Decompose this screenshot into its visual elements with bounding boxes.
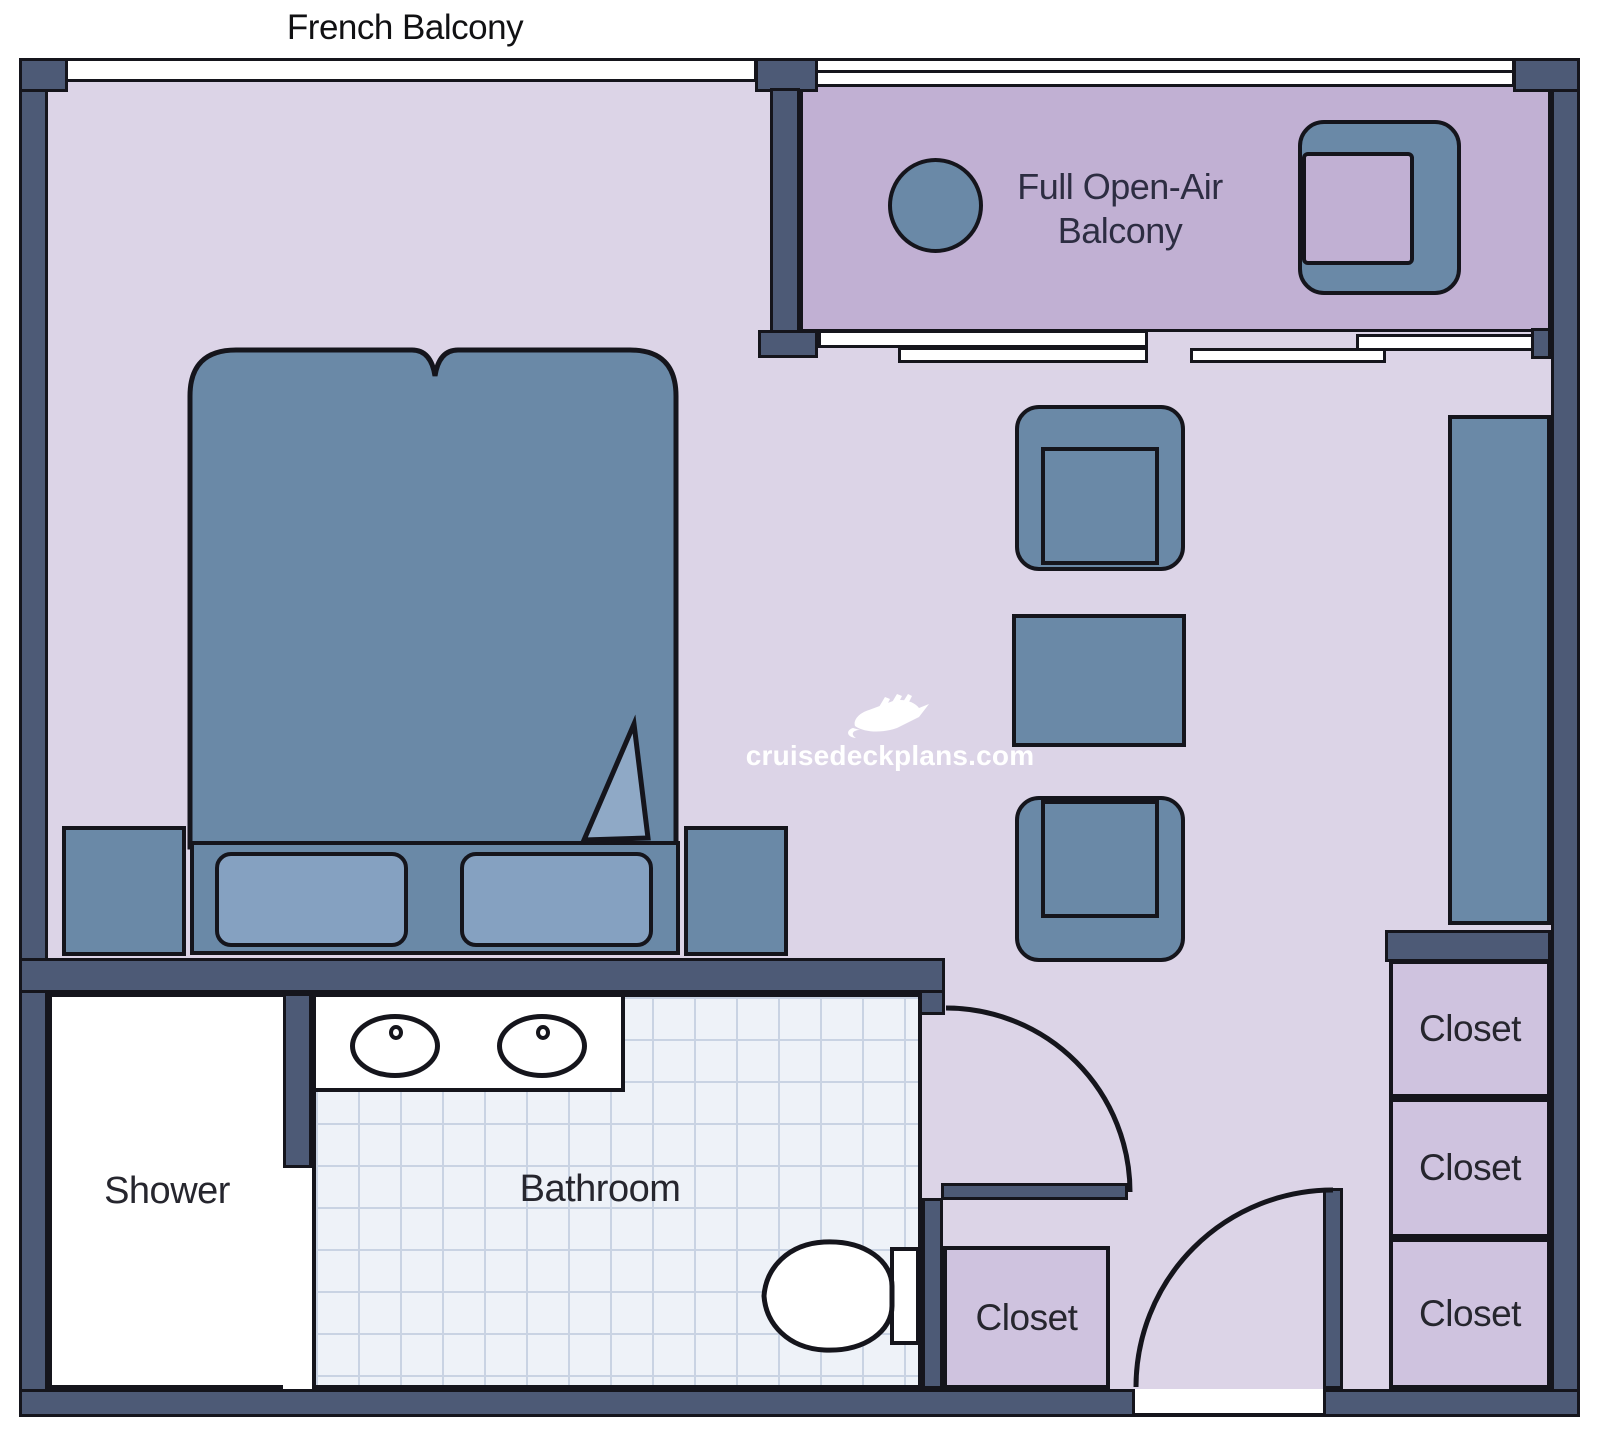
entry-threshold-line [1135, 1413, 1323, 1417]
wall-pillar-stem [770, 88, 800, 336]
closet-right-middle: Closet [1389, 1098, 1551, 1238]
sink-faucet-icon [389, 1025, 403, 1040]
closet-middle-label: Closet [976, 1297, 1078, 1339]
wall-closet-west [922, 1198, 943, 1389]
sink-faucet-icon [536, 1025, 550, 1040]
duvet-fold-corner [578, 718, 658, 848]
page-title: French Balcony [180, 8, 630, 48]
closet-middle: Closet [943, 1246, 1110, 1389]
nightstand-left [62, 826, 186, 956]
balcony-label: Full Open-Air Balcony [985, 165, 1255, 253]
cabin-floorplan: Closet Closet Closet Closet French Balco… [0, 0, 1600, 1440]
closet-right-bottom: Closet [1389, 1238, 1551, 1389]
watermark-text: cruisedeckplans.com [746, 740, 1035, 772]
balcony-chair-seat [1302, 152, 1414, 265]
watermark: cruisedeckplans.com [790, 692, 990, 772]
wall-bottom-right-segment [1323, 1389, 1580, 1417]
armchair-bottom-seat [1041, 800, 1159, 918]
closet-right-middle-label: Closet [1419, 1147, 1521, 1189]
nightstand-right [684, 826, 788, 956]
sliding-door-pane [898, 347, 1148, 363]
entry-door-swing-arc [1130, 1183, 1340, 1395]
closet-right-top: Closet [1389, 960, 1551, 1098]
french-balcony-window [48, 58, 757, 82]
wall-corner-top-left [19, 58, 68, 92]
wall-closet-column-top [1385, 930, 1551, 962]
closet-right-bottom-label: Closet [1419, 1293, 1521, 1335]
balcony-label-line2: Balcony [985, 209, 1255, 253]
cruise-ship-icon [845, 692, 935, 740]
wall-left [19, 58, 48, 1417]
armchair-top-seat [1041, 447, 1159, 565]
sliding-door-pane [1356, 334, 1534, 351]
wall-shower-divider [283, 993, 312, 1168]
bed-pillow-right [460, 852, 653, 947]
bed-pillow-left [215, 852, 408, 947]
shower-label: Shower [60, 1170, 274, 1213]
toilet-bowl [758, 1234, 898, 1358]
coffee-table [1012, 614, 1186, 747]
balcony-table [888, 158, 983, 253]
bathroom-door-swing-arc [940, 1003, 1136, 1199]
sink-basin [497, 1014, 587, 1078]
wall-corner-top-right [1513, 58, 1580, 92]
wall-pillar-top-flange [755, 58, 818, 92]
sliding-door-pane [818, 330, 1148, 348]
sink-basin [350, 1014, 440, 1078]
closet-right-top-label: Closet [1419, 1008, 1521, 1050]
wall-pillar-bottom-flange [758, 330, 818, 358]
wall-balcony-corner-notch [1531, 328, 1551, 359]
bathroom-label: Bathroom [450, 1168, 750, 1211]
balcony-label-line1: Full Open-Air [985, 165, 1255, 209]
wall-bathroom-north [19, 958, 945, 993]
wall-right [1551, 58, 1580, 1417]
wall-bottom-left-segment [19, 1389, 1135, 1417]
wall-sofa [1448, 415, 1551, 925]
